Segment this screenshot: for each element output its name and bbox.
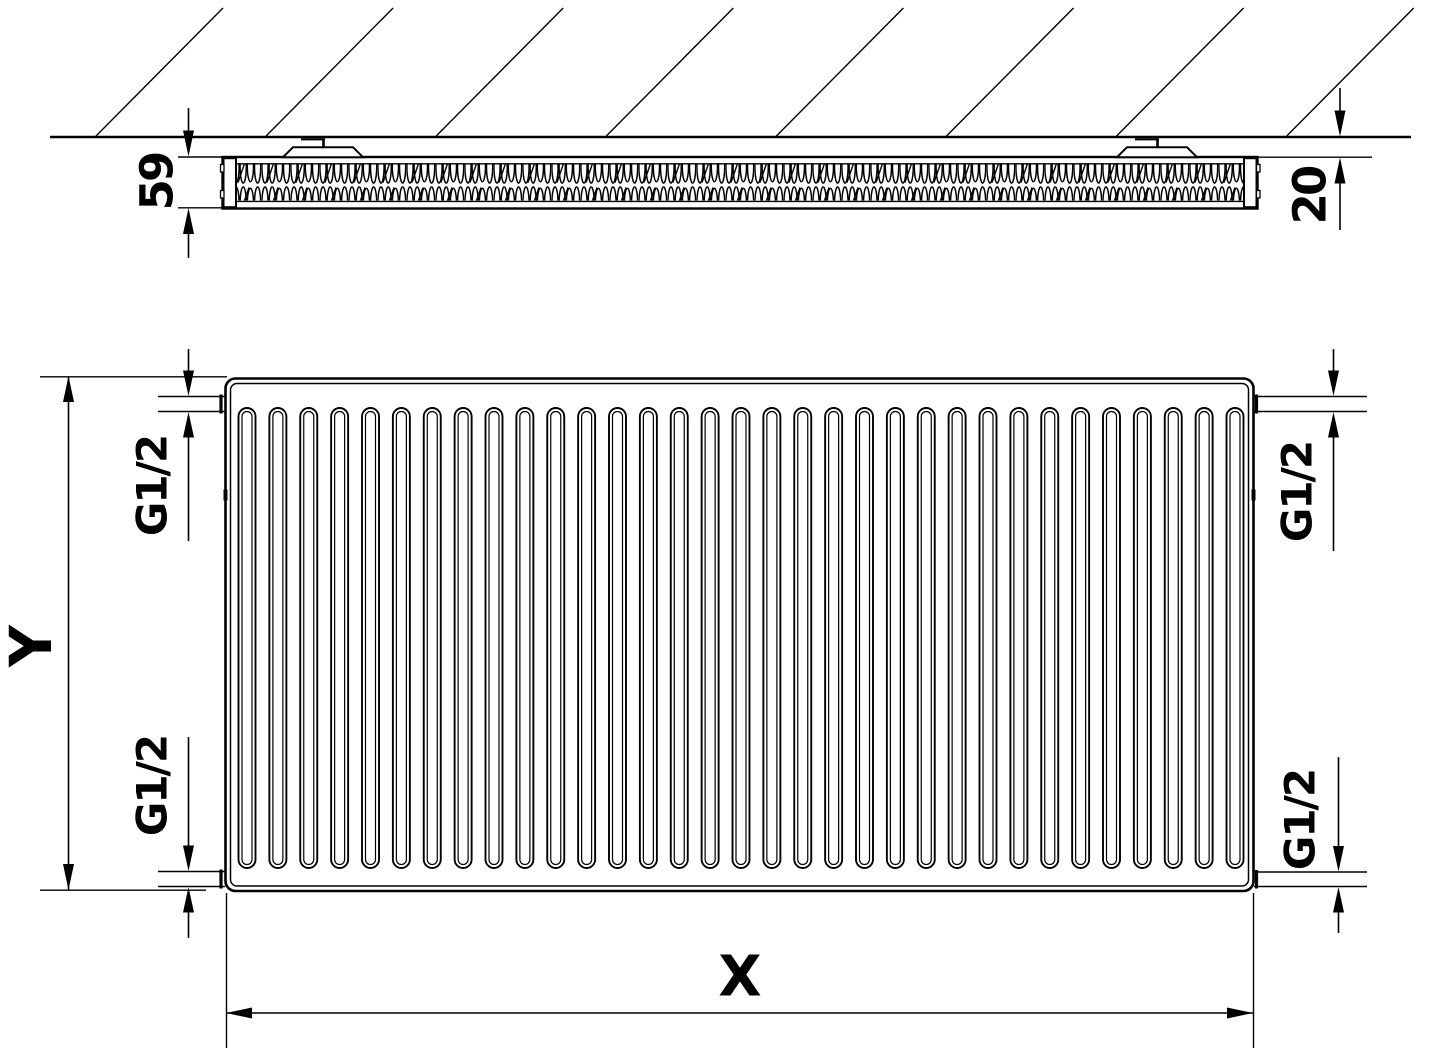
dimension-connection-top-right: G1/2 bbox=[1273, 349, 1340, 551]
wall-gap-value: 20 bbox=[1284, 166, 1337, 224]
dimension-connection-bottom-left: G1/2 bbox=[128, 736, 195, 938]
dimension-height: Y bbox=[0, 376, 227, 890]
side-seam-mark-right bbox=[1252, 490, 1256, 501]
depth-value: 59 bbox=[131, 153, 184, 210]
arrowhead-down bbox=[63, 864, 74, 890]
arrowhead-down bbox=[183, 846, 194, 872]
pipe-stub-bottom-left bbox=[158, 870, 225, 889]
wall-hatch-lines bbox=[96, 8, 1414, 136]
hatch-line bbox=[776, 8, 903, 136]
wall-bracket-right bbox=[1117, 139, 1197, 158]
cap-nub bbox=[1257, 165, 1261, 173]
dimension-width: X bbox=[226, 893, 1254, 1048]
arrowhead-up bbox=[1328, 412, 1339, 438]
pipe-stub-top-left bbox=[158, 395, 225, 414]
drawing-svg: 59 20 bbox=[0, 0, 1431, 1053]
dimension-connection-bottom-right: G1/2 bbox=[1276, 757, 1345, 933]
cap-nub bbox=[221, 191, 225, 199]
arrowhead-down bbox=[183, 131, 194, 157]
cap-nub bbox=[221, 165, 225, 173]
hatch-line bbox=[266, 8, 393, 136]
arrowhead-up bbox=[1333, 887, 1344, 913]
dimension-wall-gap: 20 bbox=[1258, 88, 1372, 230]
convector-fins bbox=[237, 165, 1244, 201]
connection-size-label: G1/2 bbox=[128, 736, 177, 836]
radiator-top-view bbox=[221, 139, 1261, 209]
hatch-line bbox=[1117, 8, 1244, 136]
end-cap-right bbox=[1244, 158, 1257, 207]
hatch-line bbox=[96, 8, 223, 136]
hatch-line bbox=[1287, 8, 1414, 136]
height-value: Y bbox=[0, 624, 65, 668]
top-view: 59 20 bbox=[50, 8, 1414, 258]
dimension-connection-top-left: G1/2 bbox=[128, 349, 195, 541]
pipe-stub-top-right bbox=[1254, 395, 1367, 414]
arrowhead-up bbox=[63, 376, 74, 402]
pipe-stub-bottom-right bbox=[1254, 870, 1367, 889]
side-seam-mark-left bbox=[224, 490, 228, 501]
radiator-technical-drawing: 59 20 bbox=[0, 0, 1431, 1053]
hatch-line bbox=[606, 8, 733, 136]
front-view: G1/2 G1/2 G1/2 G1/2 bbox=[0, 349, 1367, 1048]
arrowhead-down bbox=[1335, 111, 1346, 137]
arrowhead-up bbox=[183, 208, 194, 234]
arrowhead-right bbox=[1227, 1008, 1253, 1019]
radiator-front-view bbox=[224, 379, 1256, 892]
arrowhead-left bbox=[226, 1008, 252, 1019]
arrowhead-down bbox=[1328, 371, 1339, 397]
wall-bracket-left bbox=[283, 139, 363, 158]
connection-size-label: G1/2 bbox=[1276, 770, 1325, 870]
arrowhead-up bbox=[183, 412, 194, 438]
connection-size-label: G1/2 bbox=[128, 436, 177, 536]
hatch-line bbox=[947, 8, 1074, 136]
hatch-line bbox=[436, 8, 563, 136]
width-value: X bbox=[718, 945, 761, 1010]
dimension-depth: 59 bbox=[131, 108, 223, 258]
connection-size-label: G1/2 bbox=[1273, 442, 1322, 542]
arrowhead-down bbox=[1333, 846, 1344, 872]
end-cap-left bbox=[224, 158, 237, 207]
cap-nub bbox=[1257, 191, 1261, 199]
arrowhead-down bbox=[183, 371, 194, 397]
